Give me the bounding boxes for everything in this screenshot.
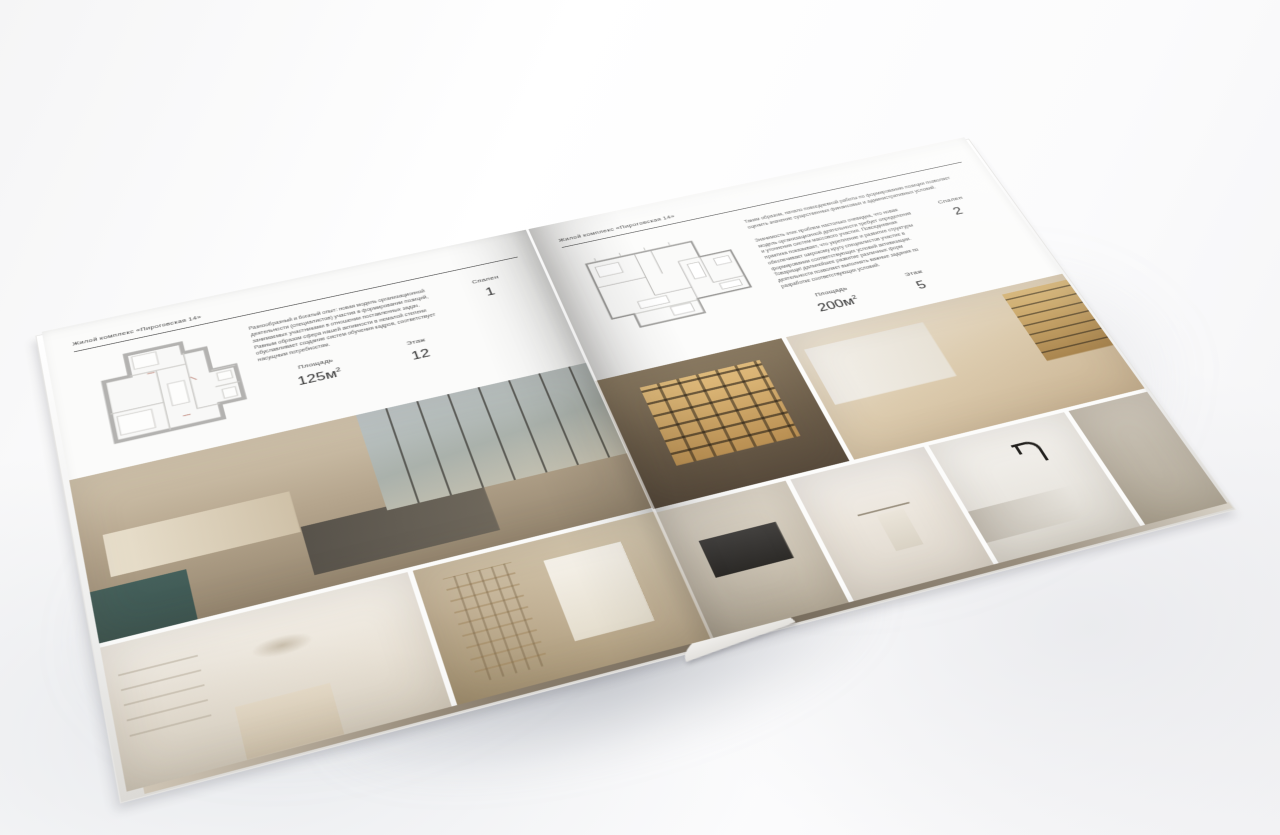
spec-floor-value: 5 — [913, 278, 929, 292]
spec-area-value: 200м2 — [815, 293, 862, 314]
spec-floor: Этаж 5 — [879, 263, 958, 299]
left-info-grid: Разнообразный и богатый опыт: новая моде… — [247, 265, 550, 395]
spec-bedrooms-value: 2 — [950, 205, 965, 218]
floor-plan-125 — [76, 327, 259, 459]
spec-floor-value: 12 — [409, 346, 432, 363]
spec-bedrooms: Спален 1 — [445, 267, 538, 320]
scene: Жилой комплекс «Пироговская 14» — [0, 0, 1280, 835]
spec-area-value: 125м2 — [296, 366, 344, 389]
spec-floor: Этаж 12 — [376, 330, 461, 369]
spec-bedrooms-value: 1 — [484, 285, 498, 299]
